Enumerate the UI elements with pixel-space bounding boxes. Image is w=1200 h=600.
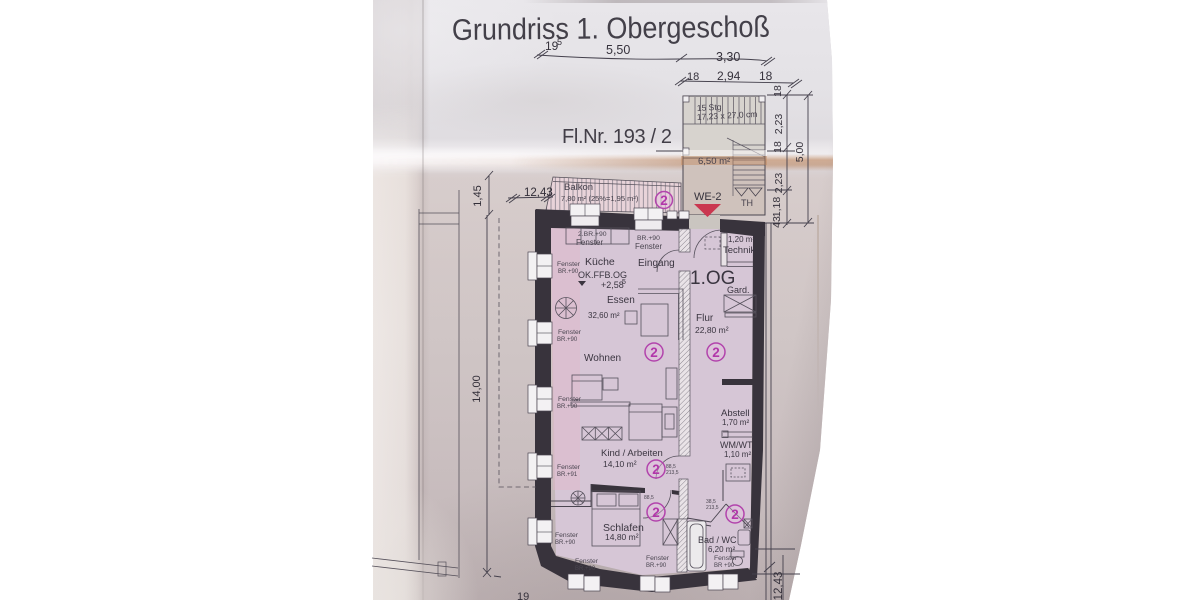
svg-text:Fl.Nr. 193 / 2: Fl.Nr. 193 / 2 bbox=[562, 126, 672, 148]
svg-text:Fenster: Fenster bbox=[646, 555, 670, 562]
svg-text:5: 5 bbox=[622, 279, 626, 286]
svg-text:2: 2 bbox=[731, 507, 739, 522]
svg-text:Gard.: Gard. bbox=[727, 285, 750, 295]
svg-text:2,23: 2,23 bbox=[773, 173, 785, 194]
svg-text:Fenster: Fenster bbox=[635, 242, 662, 251]
svg-text:1,10 m²: 1,10 m² bbox=[724, 450, 751, 459]
svg-text:22,80 m²: 22,80 m² bbox=[695, 325, 729, 335]
svg-text:Balkon: Balkon bbox=[564, 182, 593, 193]
svg-text:12,43: 12,43 bbox=[524, 187, 553, 199]
svg-text:+2,58: +2,58 bbox=[601, 280, 624, 290]
svg-text:19: 19 bbox=[517, 591, 529, 600]
svg-text:2,23: 2,23 bbox=[773, 114, 785, 135]
svg-text:7,80 m² (25%=1,95 m²): 7,80 m² (25%=1,95 m²) bbox=[561, 194, 639, 203]
svg-text:5: 5 bbox=[557, 37, 562, 47]
svg-text:5,50: 5,50 bbox=[606, 43, 630, 57]
svg-text:18: 18 bbox=[759, 69, 773, 83]
svg-text:Kind / Arbeiten: Kind / Arbeiten bbox=[601, 448, 663, 459]
svg-text:Fenster: Fenster bbox=[575, 558, 599, 565]
svg-text:18: 18 bbox=[772, 141, 784, 153]
svg-text:2: 2 bbox=[652, 505, 660, 520]
svg-text:14,10 m²: 14,10 m² bbox=[603, 459, 637, 469]
svg-text:TH: TH bbox=[741, 198, 753, 208]
svg-text:Grundriss 1. Obergeschoß: Grundriss 1. Obergeschoß bbox=[452, 11, 770, 47]
svg-text:BR.+91: BR.+91 bbox=[557, 472, 578, 478]
svg-text:BR.+90: BR.+90 bbox=[575, 566, 596, 572]
svg-text:1,18: 1,18 bbox=[771, 197, 783, 218]
svg-text:14,80 m²: 14,80 m² bbox=[605, 532, 639, 542]
svg-text:213,5: 213,5 bbox=[666, 470, 679, 476]
svg-text:Flur: Flur bbox=[696, 313, 714, 324]
svg-text:OK.FFB.OG: OK.FFB.OG bbox=[578, 270, 627, 280]
svg-text:1,45: 1,45 bbox=[472, 185, 484, 206]
svg-text:BR.+90: BR.+90 bbox=[557, 337, 578, 343]
svg-text:12,43: 12,43 bbox=[773, 572, 785, 600]
svg-text:213,5: 213,5 bbox=[706, 505, 719, 511]
svg-text:WM/WT: WM/WT bbox=[720, 440, 753, 450]
svg-text:2: 2 bbox=[650, 345, 658, 360]
svg-text:Fenster: Fenster bbox=[555, 532, 579, 539]
svg-text:1,20 m²: 1,20 m² bbox=[728, 235, 755, 244]
svg-text:Fenster: Fenster bbox=[558, 329, 582, 336]
svg-text:2: 2 bbox=[652, 462, 660, 477]
svg-text:2,94: 2,94 bbox=[717, 69, 741, 83]
svg-text:Fenster: Fenster bbox=[558, 396, 582, 403]
svg-text:Wohnen: Wohnen bbox=[584, 353, 621, 364]
svg-text:BR.+90: BR.+90 bbox=[646, 563, 667, 569]
svg-text:WE-2: WE-2 bbox=[694, 191, 722, 203]
svg-text:1,70 m²: 1,70 m² bbox=[722, 418, 749, 427]
svg-text:Fenster: Fenster bbox=[557, 261, 581, 268]
svg-text:5,00: 5,00 bbox=[794, 142, 806, 163]
svg-text:14,00: 14,00 bbox=[471, 375, 483, 403]
svg-text:6,50 m²: 6,50 m² bbox=[698, 156, 730, 167]
svg-text:2: 2 bbox=[712, 345, 720, 360]
svg-text:Fenster: Fenster bbox=[576, 238, 603, 247]
svg-text:Fenster: Fenster bbox=[557, 464, 581, 471]
svg-text:Küche: Küche bbox=[585, 256, 615, 268]
svg-text:43: 43 bbox=[771, 216, 783, 228]
svg-text:BR +90: BR +90 bbox=[714, 563, 735, 569]
svg-text:3,30: 3,30 bbox=[716, 50, 740, 64]
svg-text:BR.+90: BR.+90 bbox=[557, 404, 578, 410]
svg-text:18: 18 bbox=[772, 85, 784, 97]
svg-text:Bad / WC: Bad / WC bbox=[698, 535, 737, 545]
svg-text:BR.+90: BR.+90 bbox=[555, 540, 576, 546]
svg-text:BR.+90: BR.+90 bbox=[637, 235, 660, 242]
svg-text:Fenster: Fenster bbox=[714, 555, 738, 562]
svg-text:2.BR.+90: 2.BR.+90 bbox=[578, 231, 607, 238]
svg-text:BR.+90: BR.+90 bbox=[558, 269, 579, 275]
svg-text:88,5: 88,5 bbox=[644, 495, 654, 501]
svg-text:Technik: Technik bbox=[723, 245, 755, 256]
svg-text:2: 2 bbox=[660, 193, 668, 208]
svg-text:18: 18 bbox=[687, 71, 699, 83]
svg-text:Eingang: Eingang bbox=[638, 258, 675, 269]
svg-text:Essen: Essen bbox=[607, 295, 635, 306]
svg-text:6,20 m²: 6,20 m² bbox=[708, 545, 735, 554]
svg-text:32,60 m²: 32,60 m² bbox=[588, 311, 620, 320]
